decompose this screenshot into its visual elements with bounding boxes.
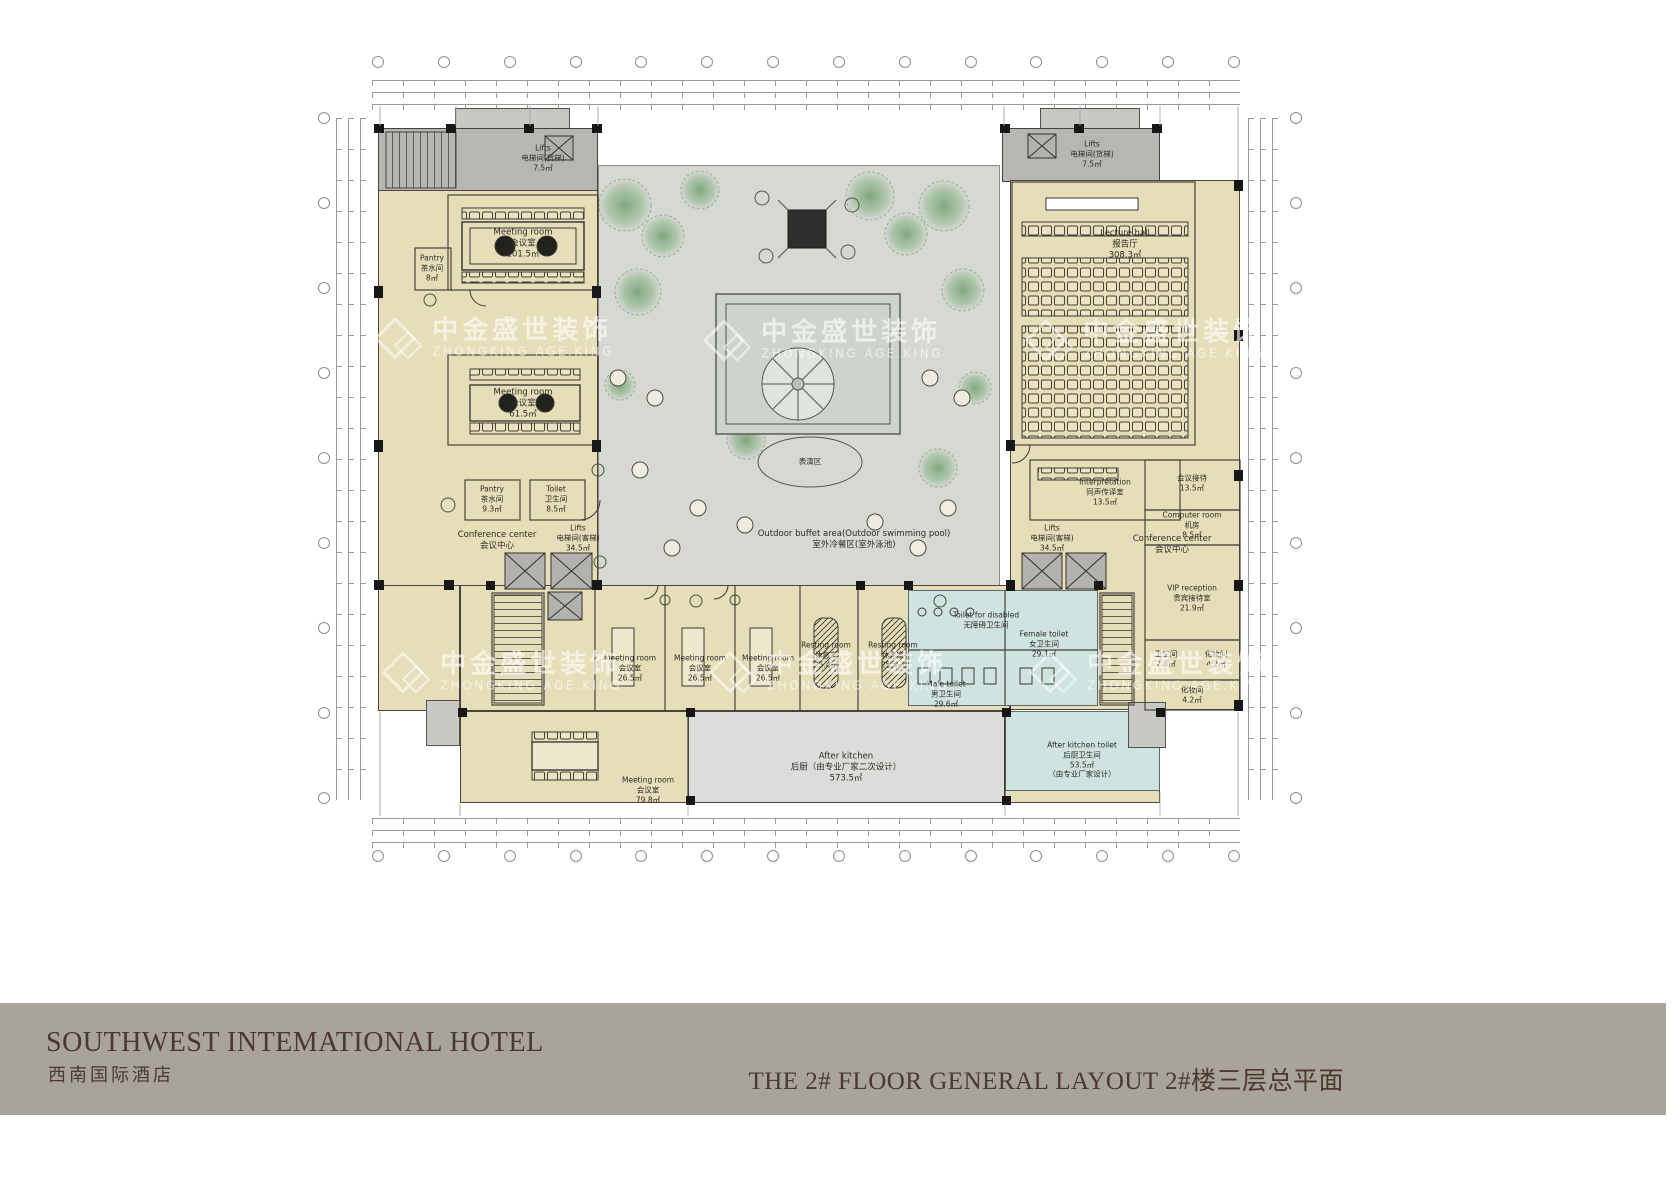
label-meeting-mid: Meeting room会议室61.5㎡ bbox=[494, 387, 553, 420]
label-meeting-small-3: Meeting room会议室26.5㎡ bbox=[742, 653, 794, 682]
service-strip-left bbox=[378, 128, 598, 192]
dimension-line bbox=[1272, 118, 1278, 800]
entry-canopy-top-right bbox=[1040, 108, 1140, 130]
dimension-line bbox=[372, 92, 1240, 98]
drawing-title: THE 2# FLOOR GENERAL LAYOUT 2#楼三层总平面 bbox=[748, 1061, 1344, 1097]
label-interpretation: Interpretation同声传译室13.5㎡ bbox=[1079, 477, 1131, 506]
grid-bubbles-left bbox=[318, 112, 330, 804]
label-resting-1: Resting room休息室25.4㎡ bbox=[801, 640, 851, 669]
label-meeting-small-1: Meeting room会议室26.5㎡ bbox=[604, 653, 656, 682]
grid-bubbles-right bbox=[1290, 112, 1302, 804]
label-lecture-hall: Lecture hall报告厅308.3㎡ bbox=[1100, 228, 1150, 261]
label-female-toilet: Female toilet女卫生间29.1㎡ bbox=[1020, 629, 1069, 658]
label-lifts-passenger-left: Lifts电梯间(客梯)34.5㎡ bbox=[556, 523, 599, 552]
label-outdoor-buffet: Outdoor buffet area(Outdoor swimming poo… bbox=[758, 529, 951, 551]
label-conference-center-left: Conference center会议中心 bbox=[458, 530, 537, 552]
label-kitchen-toilet: After kitchen toilet后厨卫生间53.5㎡（由专业厂家设计） bbox=[1047, 741, 1117, 780]
label-computer-room: Computer room机房8.5㎡ bbox=[1162, 510, 1221, 539]
dimension-line bbox=[360, 118, 366, 800]
dimension-line bbox=[372, 842, 1240, 848]
hotel-name-en: SOUTHWEST INTEMATIONAL HOTEL bbox=[46, 1027, 544, 1059]
grid-bubbles-top bbox=[372, 56, 1240, 68]
dimension-line bbox=[1248, 118, 1254, 800]
porch-bottom-right bbox=[1128, 702, 1166, 748]
dimension-line bbox=[372, 830, 1240, 836]
porch-bottom-left bbox=[426, 700, 460, 746]
label-after-kitchen: After kitchen后厨（由专业厂家二次设计）573.5㎡ bbox=[791, 751, 902, 784]
dimension-line bbox=[336, 118, 342, 800]
hotel-name-cn: 西南国际酒店 bbox=[48, 1061, 174, 1087]
label-pantry-mid: Pantry茶水间9.3㎡ bbox=[480, 484, 504, 513]
drawing-sheet: Lifts电梯间(货梯)7.5㎡ Lifts电梯间(货梯)7.5㎡ Meetin… bbox=[0, 0, 1680, 1188]
label-meeting-small-2: Meeting room会议室26.5㎡ bbox=[674, 653, 726, 682]
grid-bubbles-bottom bbox=[372, 850, 1240, 862]
label-vip-reception: VIP reception贵宾接待室21.9㎡ bbox=[1167, 583, 1217, 612]
label-male-toilet: Male toilet男卫生间29.6㎡ bbox=[926, 679, 965, 708]
label-toilet-left: Toilet卫生间8.5㎡ bbox=[545, 484, 568, 513]
label-dressing-1: 化妆间4.2㎡ bbox=[1205, 649, 1228, 669]
label-reception: 会议接待13.5㎡ bbox=[1177, 473, 1207, 493]
label-meeting-large: Meeting room会议室101.5㎡ bbox=[494, 227, 553, 260]
label-resting-2: Resting room休息室25.4㎡ bbox=[868, 640, 918, 669]
left-wing-extension bbox=[378, 585, 460, 711]
dimension-line bbox=[372, 80, 1240, 86]
dimension-line bbox=[348, 118, 354, 800]
label-pantry-top: Pantry茶水间8㎡ bbox=[420, 253, 444, 282]
courtyard bbox=[598, 165, 1000, 587]
dimension-line bbox=[1260, 118, 1266, 800]
label-lifts-freight-left: Lifts电梯间(货梯)7.5㎡ bbox=[521, 143, 564, 172]
label-performance-area: 表演区 bbox=[799, 457, 822, 467]
label-dressing-2: 化妆间4.2㎡ bbox=[1181, 685, 1204, 705]
label-accessible-toilet: Toilet for disabled无障碍卫生间 bbox=[953, 610, 1019, 630]
label-toilet-vip: 卫生间2.5㎡ bbox=[1155, 649, 1178, 669]
label-lifts-freight-right: Lifts电梯间(货梯)7.5㎡ bbox=[1070, 139, 1113, 168]
label-lifts-passenger-right: Lifts电梯间(客梯)34.5㎡ bbox=[1030, 523, 1073, 552]
axis-bubble bbox=[372, 56, 384, 68]
title-bar: SOUTHWEST INTEMATIONAL HOTEL 西南国际酒店 THE … bbox=[0, 1003, 1666, 1115]
dimension-line bbox=[372, 818, 1240, 824]
label-meeting-79: Meeting room会议室79.8㎡ bbox=[622, 775, 674, 804]
entry-canopy-top-left bbox=[455, 108, 570, 130]
